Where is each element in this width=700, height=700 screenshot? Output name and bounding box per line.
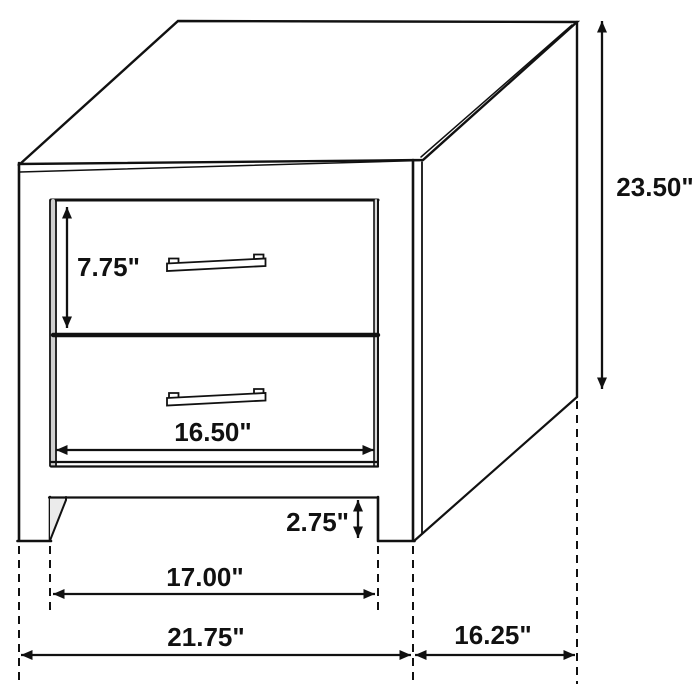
dimension-label-drawer-opening-width: 16.50" <box>174 417 251 447</box>
drawer-opening-bottom-edge <box>51 462 378 467</box>
side-panel-bottom-edge <box>414 397 577 541</box>
dimension-label-base-clearance: 2.75" <box>286 507 349 537</box>
left-edge-and-leg <box>18 163 52 541</box>
dimension-drawer-opening-width: 16.50" <box>56 417 374 450</box>
dimension-label-drawer-height: 7.75" <box>77 252 140 282</box>
dimension-side-depth: 16.25" <box>415 620 575 655</box>
dimension-label-side-depth: 16.25" <box>454 620 531 650</box>
drawer-2-handle <box>167 389 266 406</box>
dimension-label-overall-height: 23.50" <box>616 172 693 202</box>
dimension-label-leg-inner-span: 17.00" <box>166 562 243 592</box>
right-edge-and-leg <box>378 160 415 541</box>
top-surface <box>20 21 577 164</box>
diagram-canvas: 7.75" 23.50" 16.50" 2.75" 17.00" 21.75" <box>0 0 700 700</box>
handle-bar <box>167 259 266 272</box>
nightstand-dimension-diagram: 7.75" 23.50" 16.50" 2.75" 17.00" 21.75" <box>0 0 700 700</box>
dimension-leg-inner-span: 17.00" <box>53 562 375 594</box>
dimension-overall-width: 21.75" <box>21 622 411 655</box>
handle-bar <box>167 393 266 406</box>
dimension-overall-height: 23.50" <box>602 21 694 389</box>
dimension-base-clearance: 2.75" <box>286 500 358 538</box>
dimension-drawer-height: 7.75" <box>67 207 140 328</box>
dimension-label-overall-width: 21.75" <box>167 622 244 652</box>
drawer-1-handle <box>167 255 266 272</box>
